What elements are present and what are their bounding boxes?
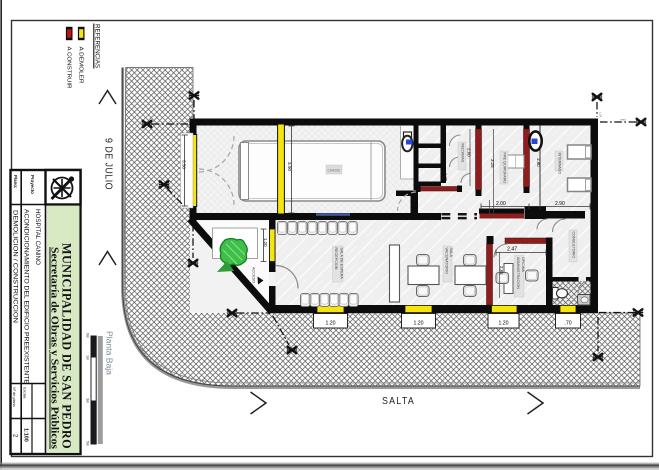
svg-text:PRE QUIROFANO: PRE QUIROFANO xyxy=(502,153,506,184)
svg-text:1.20: 1.20 xyxy=(325,320,335,326)
svg-text:INTERNADO: INTERNADO xyxy=(557,153,561,175)
svg-text:3.90: 3.90 xyxy=(287,162,292,171)
svg-text:3.90: 3.90 xyxy=(536,158,541,167)
svg-text:3.25: 3.25 xyxy=(490,159,495,168)
svg-text:2.00: 2.00 xyxy=(496,201,506,207)
svg-text:3.50: 3.50 xyxy=(182,160,187,169)
svg-text:MUNICIPALIDAD DE SAN PEDRO: MUNICIPALIDAD DE SAN PEDRO xyxy=(60,243,74,449)
svg-text:CHASIS: CHASIS xyxy=(328,169,341,173)
svg-text:ACONDICIONAMIENTO DEL EDIFICIO: ACONDICIONAMIENTO DEL EDIFICIO PREEXISTE… xyxy=(23,209,29,384)
svg-text:Nº de plano: Nº de plano xyxy=(12,387,16,407)
svg-text:1:100: 1:100 xyxy=(23,428,29,442)
svg-text:MUCAMAS: MUCAMAS xyxy=(460,144,464,163)
svg-text:1.20: 1.20 xyxy=(498,320,508,326)
svg-text:SALTA: SALTA xyxy=(382,395,415,407)
svg-text:Plano:: Plano: xyxy=(13,175,18,189)
svg-text:VACUNATORIO: VACUNATORIO xyxy=(445,248,449,275)
svg-text:HOSPITAL CANINO: HOSPITAL CANINO xyxy=(34,209,40,265)
svg-text:med.: med. xyxy=(620,118,627,122)
svg-text:A DEMOLER: A DEMOLER xyxy=(78,47,84,84)
svg-text:5m: 5m xyxy=(86,441,90,446)
svg-text:2.90: 2.90 xyxy=(555,201,565,207)
svg-text:3m: 3m xyxy=(86,398,90,403)
svg-text:2.85: 2.85 xyxy=(499,266,504,275)
svg-text:Escala: Escala xyxy=(23,387,27,399)
svg-text:SALA DE ESPERA: SALA DE ESPERA xyxy=(339,248,343,280)
svg-text:Proyecto: Proyecto xyxy=(30,175,35,194)
svg-text:REFERENCIAS: REFERENCIAS xyxy=(93,24,100,68)
svg-text:1m: 1m xyxy=(86,355,90,360)
svg-text:1.70: 1.70 xyxy=(443,173,448,182)
svg-text:2.60: 2.60 xyxy=(467,148,472,157)
svg-text:OFICINA: OFICINA xyxy=(521,257,525,272)
svg-text:0m: 0m xyxy=(86,333,90,338)
svg-text:Planta Baja: Planta Baja xyxy=(105,331,115,375)
svg-text:ACCESO: ACCESO xyxy=(252,267,256,283)
svg-text:CONSULTORIO: CONSULTORIO xyxy=(571,232,575,259)
svg-text:RECEPCION: RECEPCION xyxy=(334,248,338,270)
svg-text:ADMINISTRACION: ADMINISTRACION xyxy=(516,257,520,289)
svg-text:DEMOLICION / CONSTRUCCION: DEMOLICION / CONSTRUCCION xyxy=(12,210,18,323)
svg-text:SALA: SALA xyxy=(449,248,453,258)
svg-text:1.20: 1.20 xyxy=(413,320,423,326)
svg-text:9 DE JULIO: 9 DE JULIO xyxy=(103,138,114,190)
svg-text:A CONSTRUIR: A CONSTRUIR xyxy=(65,47,71,89)
svg-text:1.20: 1.20 xyxy=(263,238,268,247)
svg-text:L.M.: L.M. xyxy=(599,112,603,118)
svg-text:Secretaría de Obras y Servicio: Secretaría de Obras y Servicios Públicos xyxy=(49,247,60,449)
svg-text:.70: .70 xyxy=(564,320,571,326)
svg-text:2.47: 2.47 xyxy=(507,247,517,253)
